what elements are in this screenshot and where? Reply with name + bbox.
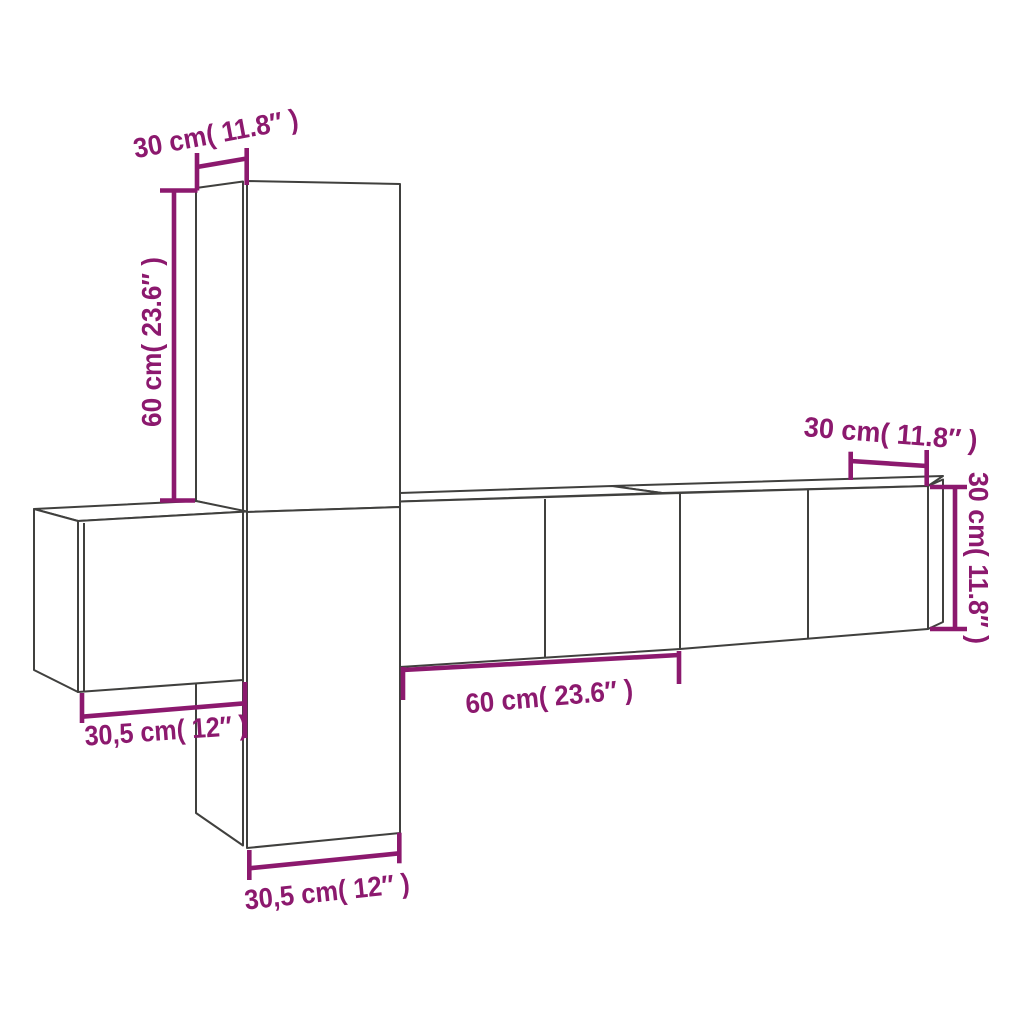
right-cabinet-front-face [680,486,928,649]
dimension-top-cabinet-width: 30 cm( 11.8″ ) [131,103,301,190]
cabinet-diagram-svg: 30 cm( 11.8″ ) 60 cm( 23.6″ ) 30,5 cm( 1… [0,0,1024,1024]
dimension-right-cabinet-width: 30 cm( 11.8″ ) [803,411,979,486]
dim-line [249,853,399,868]
dim-line [197,159,247,168]
dim-label-right-cabinet-height: 30 cm( 11.8″ ) [963,472,994,644]
dimension-top-cabinet-height: 60 cm( 23.6″ ) [136,191,198,501]
left-cabinet [34,501,247,692]
left-cabinet-front-face [78,512,243,692]
left-cabinet-side-face [34,509,78,692]
tall-top-cabinet-front-face [247,181,400,512]
dim-label-top-cabinet-height: 60 cm( 23.6″ ) [136,257,167,427]
product-dimension-diagram: 30 cm( 11.8″ ) 60 cm( 23.6″ ) 30,5 cm( 1… [0,0,1024,1024]
middle-cabinet [400,486,680,667]
dim-label-right-cabinet-width: 30 cm( 11.8″ ) [803,411,979,456]
dim-label-middle-cabinet-width: 60 cm( 23.6″ ) [464,674,634,720]
bottom-cabinet-front-face [247,507,400,848]
dim-label-top-cabinet-width: 30 cm( 11.8″ ) [131,103,301,164]
right-cabinet-side-face [928,480,943,630]
tall-top-cabinet [196,181,400,512]
dim-line [851,461,927,466]
tall-top-cabinet-side-face [196,182,243,512]
dim-label-bottom-cabinet-width: 30,5 cm( 12″ ) [243,867,411,915]
middle-cabinet-front-face [400,493,680,667]
